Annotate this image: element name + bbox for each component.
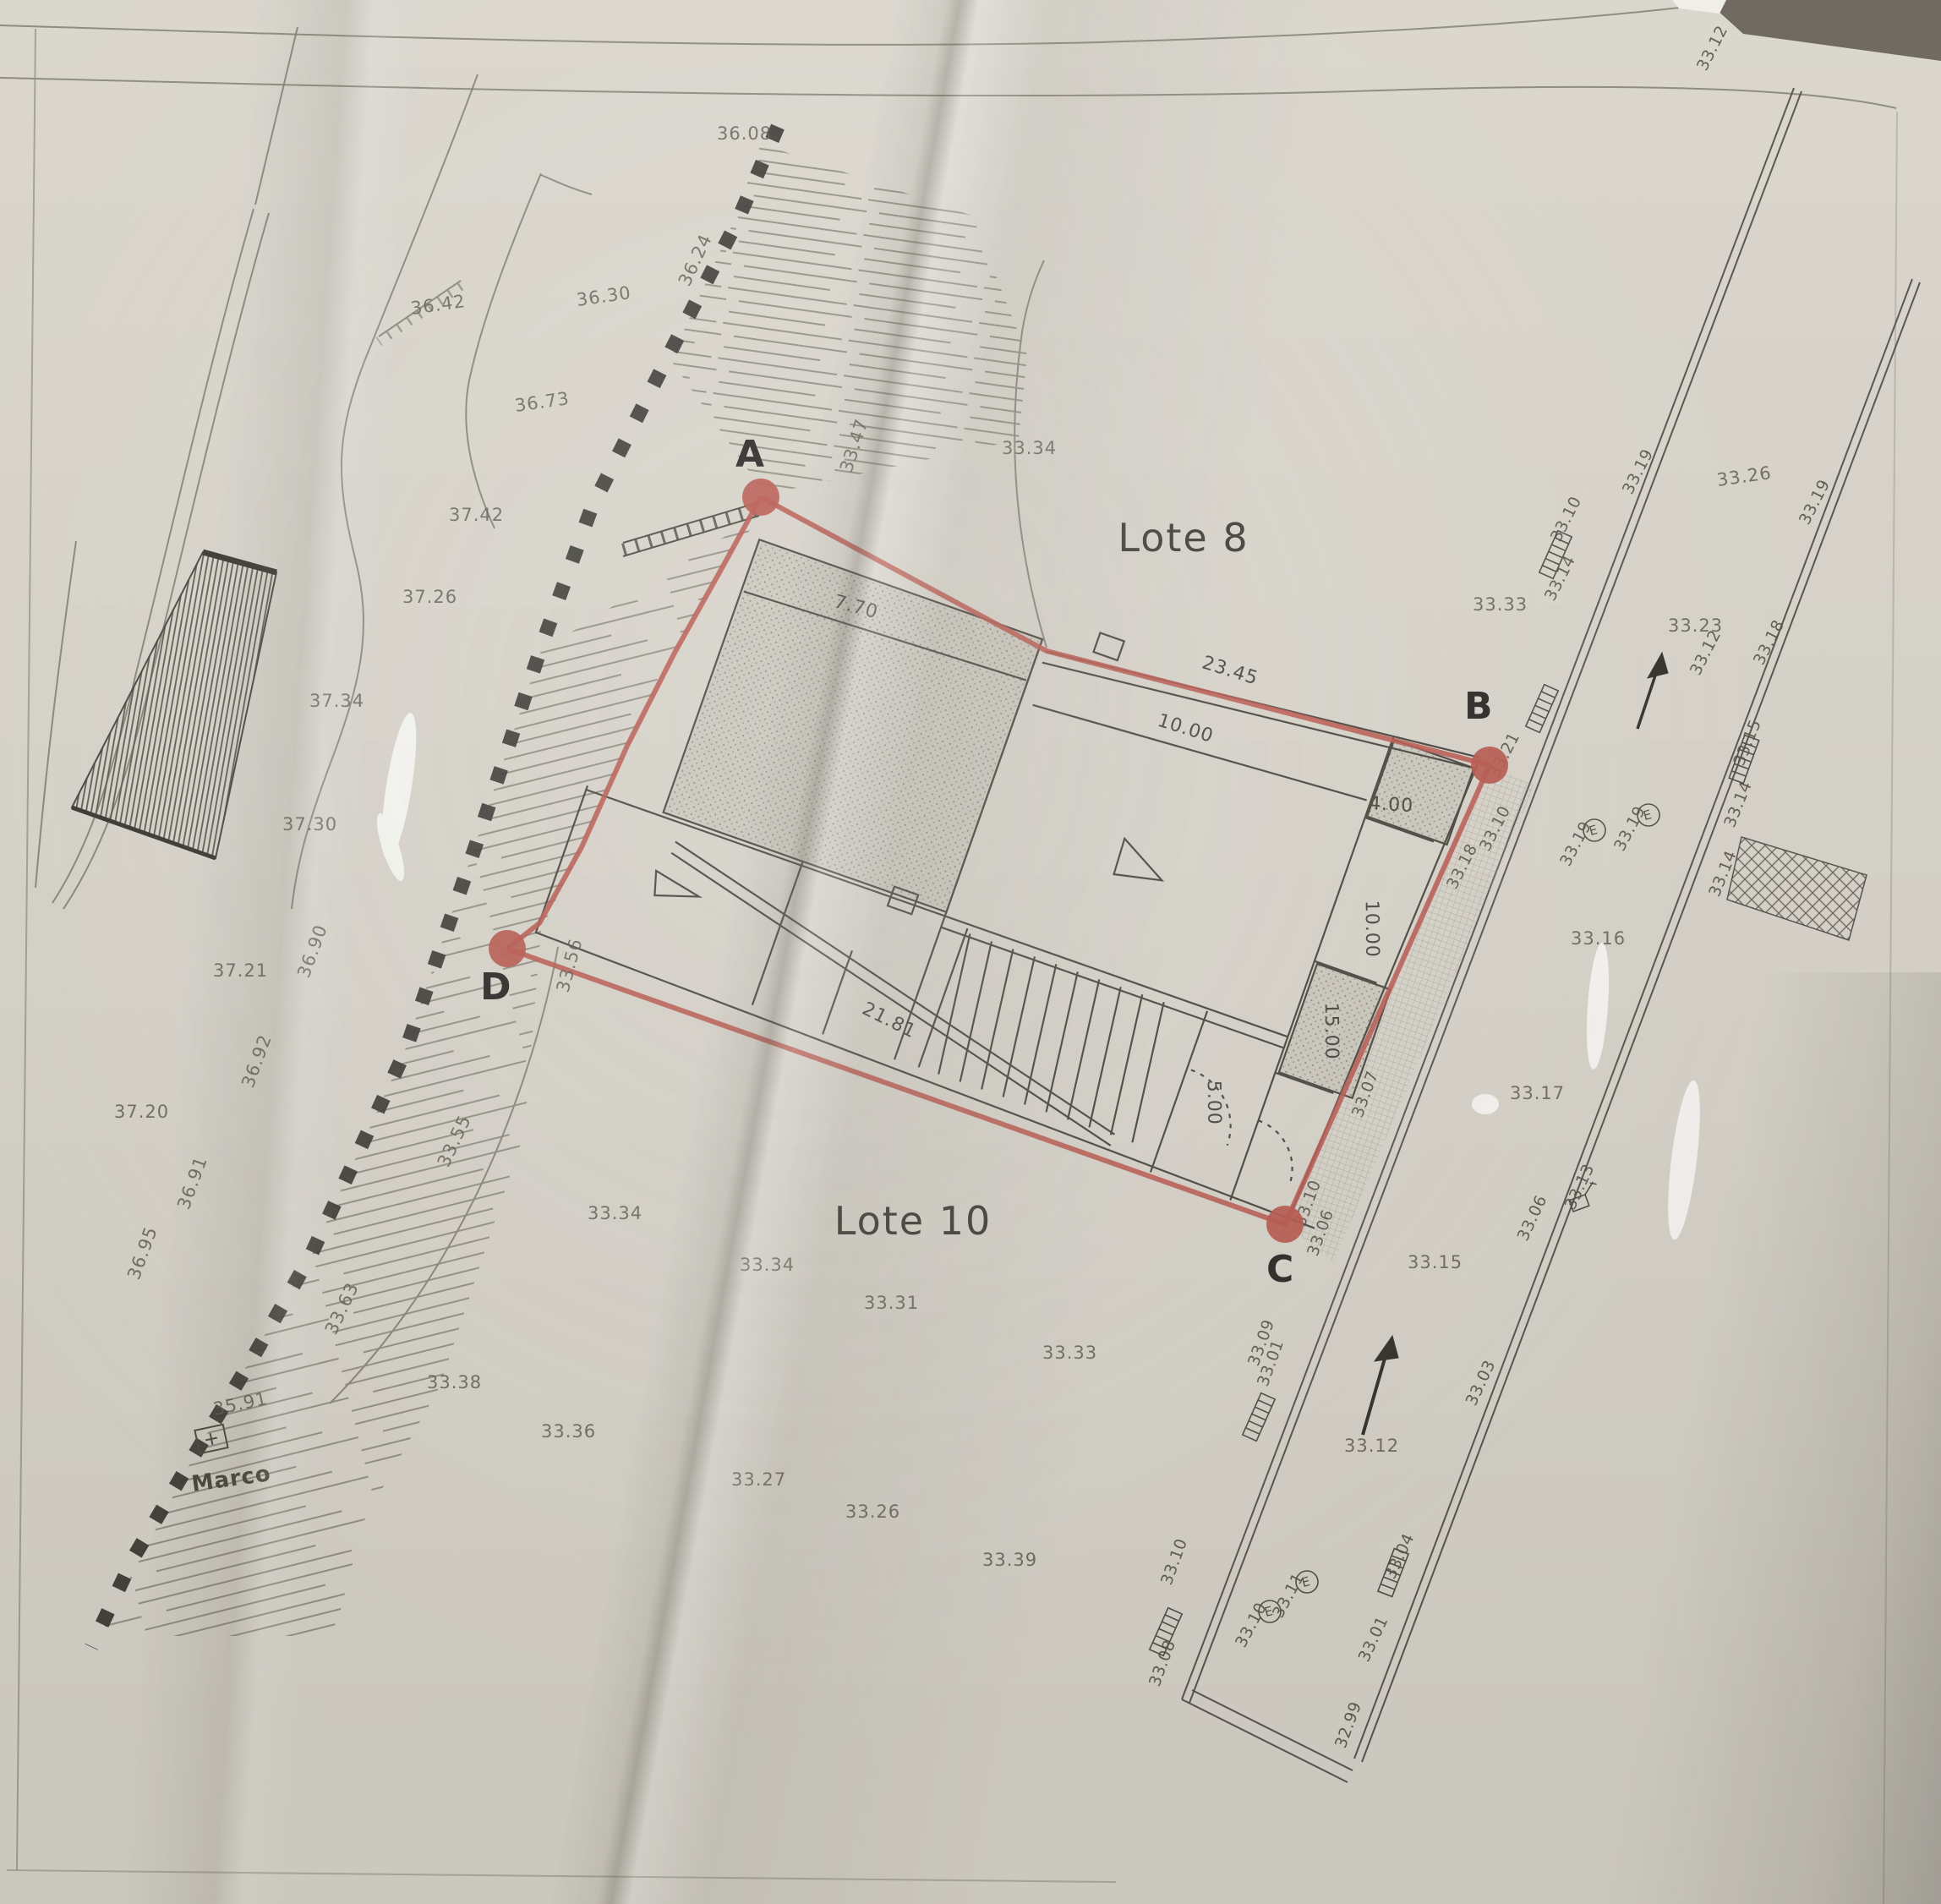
corner-point-D [489, 930, 526, 967]
dimension-label: 23.45 [1200, 652, 1260, 689]
road-station-label: 33.03 [1463, 1357, 1500, 1409]
site-plan-drawing: 7.7010.0023.454.0010.0015.005.0021.81 36… [0, 0, 1941, 1904]
elevation-label: 37.26 [402, 587, 457, 607]
slope-triangle-icon [648, 871, 703, 910]
road-station-label: 33.14 [1720, 779, 1756, 830]
elevation-label: 33.34 [740, 1255, 795, 1275]
elevation-label: 33.34 [588, 1203, 642, 1223]
road-station-label: 33.15 [1730, 717, 1765, 769]
road-station-label: 33.04 [1381, 1530, 1419, 1582]
elevation-label: 33.12 [1344, 1436, 1399, 1456]
corner-label-A: A [735, 433, 764, 476]
window-marker [1094, 632, 1124, 660]
elevation-label: 33.15 [1408, 1252, 1463, 1272]
elevation-label: 37.30 [282, 814, 337, 834]
dimension-label: 4.00 [1368, 793, 1413, 817]
pole-elevation-label: 33.19 [1556, 818, 1595, 870]
road-station-label: 33.18 [1750, 617, 1788, 669]
corner-label-C: C [1266, 1248, 1293, 1291]
elevation-label: 33.26 [1715, 462, 1773, 490]
crosshatched-area [1727, 837, 1867, 940]
hatched-embankment [72, 552, 276, 858]
elevation-label: 36.90 [293, 922, 331, 980]
road-station-label: 33.12 [1693, 23, 1731, 74]
elevation-label: 33.27 [731, 1469, 786, 1490]
elevation-label: 33.39 [982, 1550, 1037, 1570]
elevation-label: 33.38 [427, 1372, 482, 1392]
dimension-label: 10.00 [1361, 900, 1383, 958]
corner-label-D: D [480, 966, 511, 1009]
table-fabric-corner [1706, 0, 1941, 61]
corner-point-B [1471, 747, 1508, 784]
elevation-label: 33.17 [1510, 1083, 1565, 1103]
elevation-label: 36.42 [409, 291, 467, 319]
elevation-label: 37.42 [449, 505, 504, 525]
paper-sliver [1672, 0, 1726, 14]
corner-label-B: B [1464, 685, 1493, 728]
road-station-label: 33.14 [1541, 553, 1579, 605]
corner-point-A [742, 479, 779, 516]
pole-elevation-label: 33.10 [1232, 1600, 1271, 1651]
pole-elevation-label: 33.11 [1269, 1570, 1308, 1622]
road-station-label: 33.19 [1619, 446, 1657, 498]
elevation-label: 33.31 [864, 1293, 919, 1313]
elevation-label: 37.34 [309, 691, 364, 711]
road-station-label: 33.13 [1561, 1161, 1599, 1212]
elevation-label: 37.20 [114, 1102, 169, 1122]
elevation-label: 36.91 [173, 1153, 211, 1212]
elevation-label: 36.95 [123, 1223, 161, 1282]
elevation-label: 33.33 [1473, 594, 1528, 615]
lot-label: Lote 8 [1118, 515, 1249, 561]
slope-triangle-icon [1113, 839, 1171, 890]
elevation-label: 36.08 [717, 123, 772, 144]
road-lines [1182, 88, 1920, 1782]
elevation-label: 33.33 [1042, 1343, 1097, 1363]
photographed-site-plan: 7.7010.0023.454.0010.0015.005.0021.81 36… [0, 0, 1941, 1904]
dimension-label: 21.81 [859, 999, 920, 1043]
dimension-label: 5.00 [1203, 1081, 1225, 1125]
elevation-label: 33.34 [1002, 438, 1057, 458]
road-station-label: 33.06 [1514, 1192, 1551, 1244]
lot-label: Lote 10 [834, 1198, 992, 1244]
road-station-label: 33.10 [1547, 494, 1585, 545]
pole-elevation-label: 33.19 [1610, 803, 1649, 855]
road-station-label: 33.10 [1157, 1536, 1191, 1588]
elevation-label: 36.73 [513, 388, 571, 416]
elevation-label: 37.21 [213, 960, 268, 981]
elevation-label: 33.16 [1571, 928, 1626, 949]
road-station-label: 33.01 [1355, 1613, 1392, 1665]
road-station-label: 33.08 [1145, 1638, 1179, 1689]
elevation-label: 36.30 [575, 282, 632, 310]
elevation-label: 33.36 [541, 1421, 596, 1442]
elevation-label: 36.92 [238, 1031, 276, 1090]
dimension-label: 15.00 [1320, 1003, 1342, 1060]
elevation-label: 33.26 [845, 1502, 900, 1522]
corner-point-C [1266, 1206, 1304, 1243]
